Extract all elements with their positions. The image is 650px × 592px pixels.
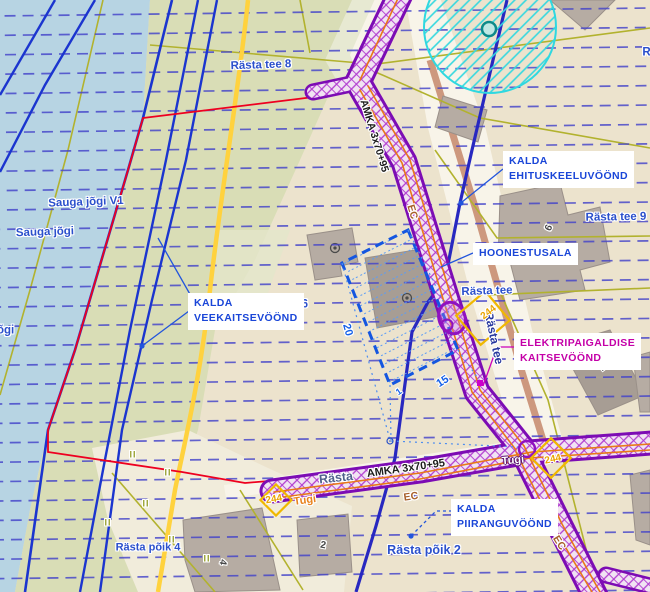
map-canvas[interactable]: Rästa tee 8Rästa tee 9Rästa teeSauga jõg… — [0, 0, 650, 592]
well-icon — [482, 22, 496, 36]
map-geometry — [0, 0, 650, 592]
